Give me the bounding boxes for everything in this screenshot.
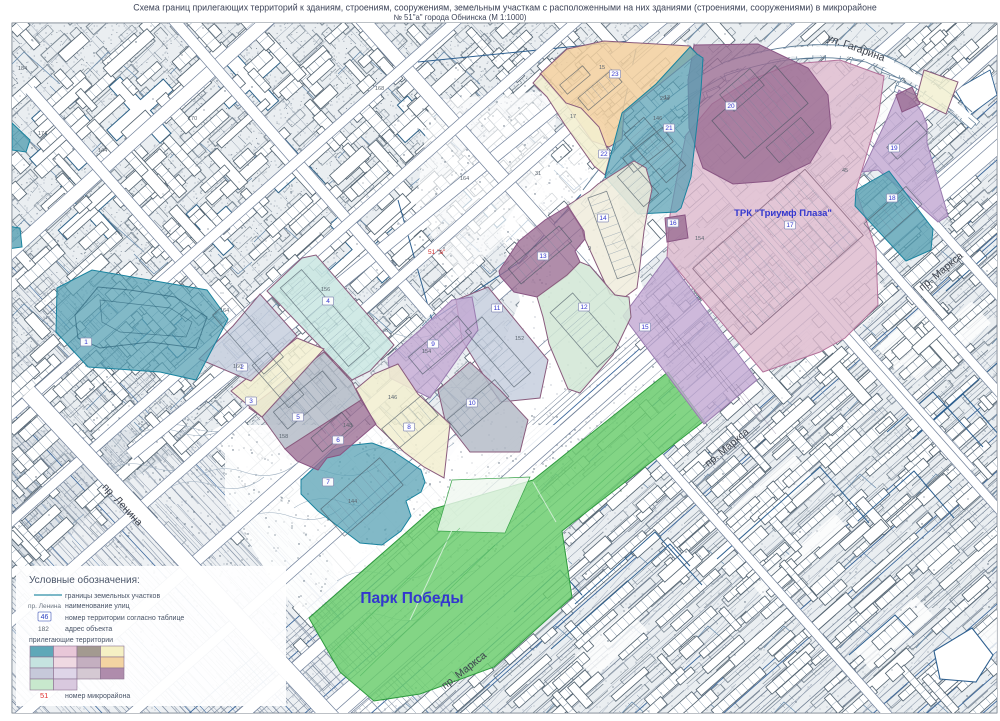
svg-text:148: 148 (343, 423, 352, 429)
svg-text:184: 184 (18, 66, 27, 72)
svg-text:182: 182 (38, 626, 49, 633)
svg-text:наименование улиц: наименование улиц (65, 603, 130, 610)
svg-text:15: 15 (599, 65, 605, 71)
svg-text:адрес объекта: адрес объекта (65, 625, 112, 633)
svg-text:144: 144 (98, 148, 107, 154)
svg-text:46: 46 (41, 614, 49, 621)
svg-text:Парк Победы: Парк Победы (360, 590, 463, 607)
svg-text:11: 11 (494, 305, 501, 312)
svg-text:1: 1 (84, 339, 88, 346)
svg-text:Схема границ прилегающих терри: Схема границ прилегающих территорий к зд… (133, 3, 877, 13)
svg-text:45: 45 (842, 168, 848, 174)
svg-text:10: 10 (468, 400, 476, 407)
svg-text:164: 164 (220, 308, 229, 314)
svg-text:29а: 29а (660, 96, 670, 102)
svg-text:4: 4 (326, 298, 330, 305)
svg-text:5: 5 (296, 414, 300, 421)
svg-text:164: 164 (460, 176, 469, 182)
svg-text:160: 160 (233, 364, 242, 370)
svg-text:16: 16 (669, 220, 677, 227)
svg-text:7: 7 (326, 479, 330, 486)
svg-text:146: 146 (653, 116, 662, 122)
svg-text:№ 51"а" города Обнинска (М 1:1: № 51"а" города Обнинска (М 1:1000) (394, 13, 527, 22)
svg-text:Условные обозначения:: Условные обозначения: (29, 574, 140, 586)
svg-text:номер микрорайона: номер микрорайона (65, 692, 130, 700)
svg-text:17: 17 (570, 114, 576, 120)
svg-text:22: 22 (600, 151, 608, 158)
svg-text:границы земельных участков: границы земельных участков (65, 593, 160, 600)
svg-text:21: 21 (665, 125, 673, 132)
svg-text:31: 31 (535, 171, 541, 177)
svg-text:9: 9 (588, 246, 591, 252)
svg-text:пр. Ленина: пр. Ленина (28, 603, 61, 610)
svg-text:168: 168 (375, 86, 384, 92)
svg-text:18: 18 (888, 195, 896, 202)
svg-text:9: 9 (431, 341, 435, 348)
svg-text:прилегающие территории: прилегающие территории (29, 637, 113, 644)
svg-text:ТРК "Триумф Плаза": ТРК "Триумф Плаза" (734, 208, 832, 219)
svg-text:6: 6 (336, 437, 340, 444)
svg-text:13: 13 (539, 253, 547, 260)
svg-text:17: 17 (786, 222, 794, 229)
svg-text:174: 174 (38, 131, 47, 137)
svg-text:146: 146 (388, 395, 397, 401)
svg-text:152: 152 (515, 336, 524, 342)
svg-text:51 "а": 51 "а" (428, 249, 446, 256)
svg-text:154: 154 (695, 236, 704, 242)
svg-text:19: 19 (890, 145, 898, 152)
svg-text:170: 170 (188, 116, 197, 122)
svg-text:51: 51 (40, 691, 48, 700)
svg-text:8: 8 (407, 424, 411, 431)
svg-text:158: 158 (279, 434, 288, 440)
svg-text:154: 154 (422, 349, 431, 355)
svg-text:номер территории согласно табл: номер территории согласно таблице (65, 614, 184, 622)
svg-text:144: 144 (348, 499, 357, 505)
svg-text:15: 15 (641, 324, 649, 331)
svg-text:3: 3 (249, 398, 253, 405)
svg-text:14: 14 (599, 215, 607, 222)
svg-text:156: 156 (321, 287, 330, 293)
svg-text:12: 12 (580, 304, 588, 311)
svg-text:20: 20 (727, 103, 735, 110)
svg-text:23: 23 (611, 71, 619, 78)
